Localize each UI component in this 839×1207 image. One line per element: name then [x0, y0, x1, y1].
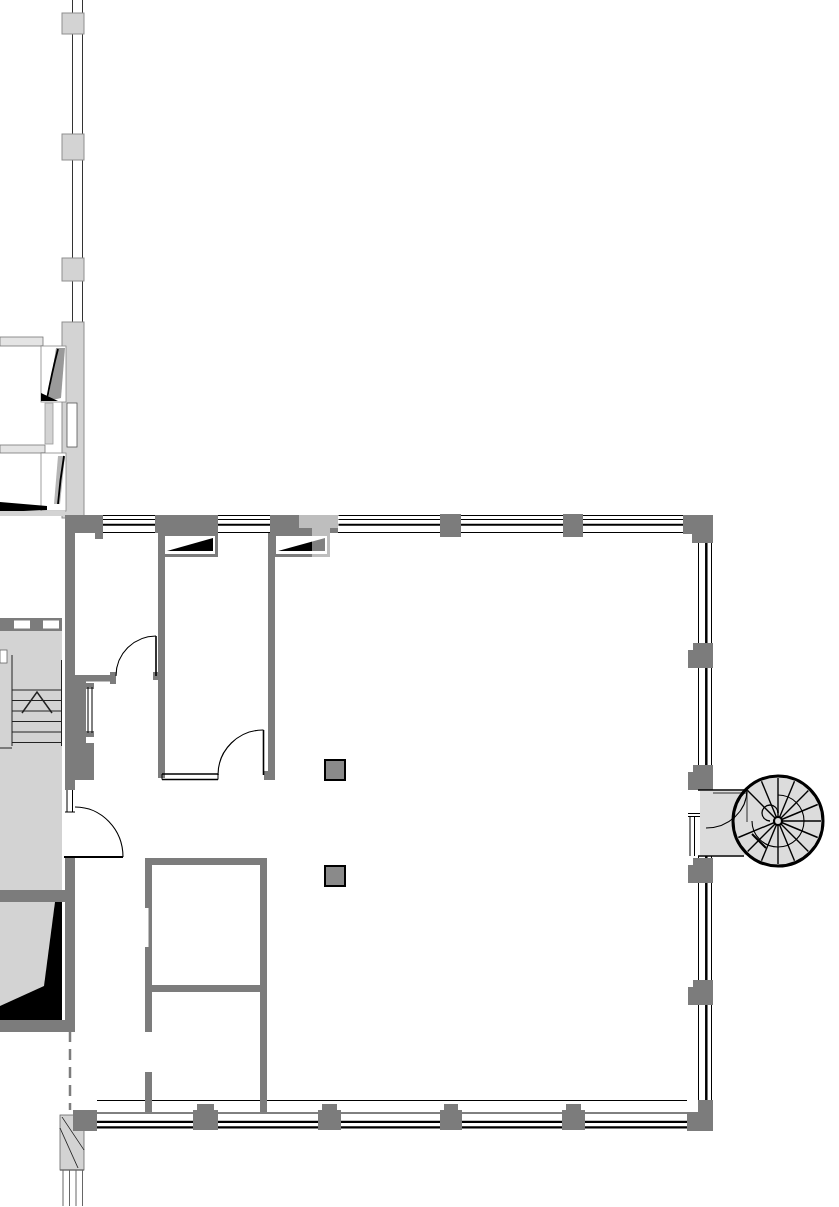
room-wall: [145, 985, 267, 992]
column: [325, 866, 345, 886]
door-jamb: [264, 771, 275, 780]
neighbor-column: [62, 13, 84, 34]
interior-wall: [158, 533, 165, 778]
stair-pole: [774, 817, 782, 825]
neighbor-wall: [0, 890, 75, 902]
neighbor-band: [0, 445, 45, 453]
facade-column: [444, 1104, 458, 1110]
neighbor-band: [0, 511, 65, 516]
corner-column: [692, 534, 713, 543]
corner-column: [95, 533, 103, 539]
facade-column: [193, 1110, 218, 1130]
watermark: [312, 528, 330, 558]
facade-column: [566, 1104, 581, 1110]
facade-column: [562, 1110, 585, 1130]
facade-column: [197, 1104, 214, 1110]
door-swing: [116, 636, 156, 676]
wall-opening: [145, 1032, 152, 1072]
door-jamb: [110, 672, 116, 684]
door-swing: [75, 807, 123, 857]
wall-column: [693, 858, 713, 883]
neighbor-window: [67, 403, 77, 447]
floor-plan-page: [0, 0, 839, 1207]
wall-column: [688, 987, 693, 1005]
wall-column: [688, 650, 693, 668]
facade-column: [440, 1110, 462, 1130]
facade-column: [440, 514, 461, 537]
floor-plan-canvas: [0, 0, 839, 1207]
neighbor-band: [0, 337, 43, 346]
wall-column: [693, 643, 713, 668]
cased-opening: [86, 689, 94, 731]
neighbor-wall-window: [43, 621, 59, 629]
wall-column: [693, 980, 713, 1005]
corner-column: [73, 1110, 97, 1131]
sill-wedge: [0, 502, 47, 512]
wall-column: [688, 865, 693, 883]
facade-column: [318, 1110, 341, 1130]
corner-column: [687, 1112, 713, 1131]
wall-column: [693, 765, 713, 790]
party-wall: [65, 857, 75, 1032]
column: [325, 760, 345, 780]
wall-chunk: [65, 743, 94, 780]
corner-column: [65, 515, 103, 533]
neighbor-partition: [45, 403, 53, 444]
neighbor-wall-window: [14, 621, 30, 629]
corner-column: [683, 515, 713, 534]
interior-wall: [268, 533, 275, 778]
neighbor-column: [62, 134, 84, 160]
neighbor-interior: [0, 631, 62, 890]
room-wall: [145, 858, 267, 865]
facade-column: [563, 514, 583, 537]
door-swing: [218, 730, 264, 775]
wall-niche: [145, 908, 149, 947]
facade-pier: [155, 515, 218, 533]
neighbor-wall: [0, 1020, 75, 1032]
wall-column: [688, 772, 693, 790]
corner-column: [698, 1100, 713, 1112]
facade-column: [322, 1104, 337, 1110]
edge-window: [0, 650, 7, 663]
watermark: [299, 513, 339, 528]
neighbor-column: [62, 258, 84, 281]
